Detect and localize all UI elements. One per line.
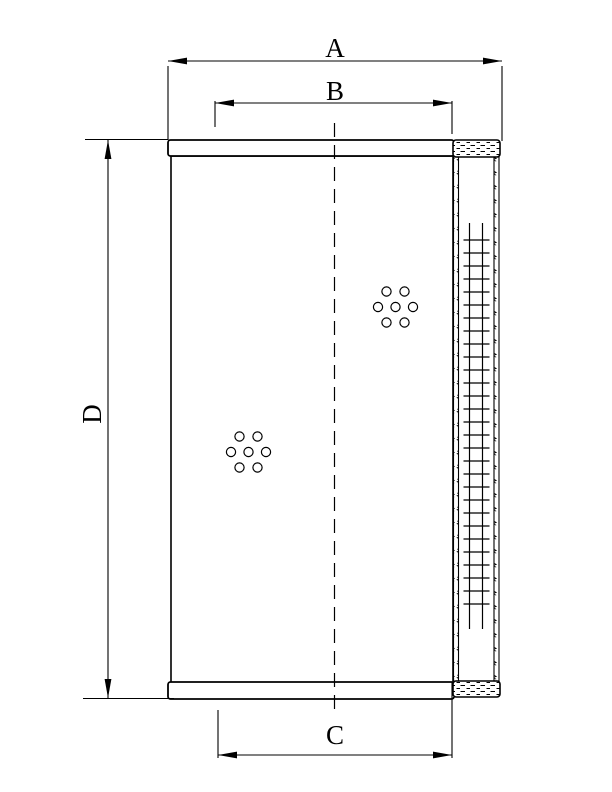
section-left-wall xyxy=(454,157,459,681)
dim-label-c: C xyxy=(326,720,344,750)
filter-body-group xyxy=(168,140,454,699)
dimension-arrowhead xyxy=(105,679,112,698)
dim-label-a: A xyxy=(325,33,345,63)
vent-hole xyxy=(253,463,262,472)
media-section-group xyxy=(453,140,500,697)
dimension-arrowhead xyxy=(168,58,187,65)
vent-hole xyxy=(235,432,244,441)
dim-label-b: B xyxy=(326,76,344,106)
dimension-arrowhead xyxy=(215,100,234,107)
cylinder-body xyxy=(171,156,453,683)
media-section-background xyxy=(453,141,499,697)
vent-hole xyxy=(382,318,391,327)
section-right-wall xyxy=(494,157,499,681)
bottom-end-cap xyxy=(168,682,454,699)
vent-hole xyxy=(226,447,235,456)
stippled-top-cap xyxy=(453,140,500,157)
vent-hole xyxy=(261,447,270,456)
vent-hole xyxy=(400,287,409,296)
vent-hole xyxy=(253,432,262,441)
vent-hole xyxy=(244,447,253,456)
vent-hole xyxy=(373,302,382,311)
vent-hole xyxy=(408,302,417,311)
vent-hole xyxy=(391,302,400,311)
filter-element-drawing: A B C D xyxy=(0,0,612,792)
dim-label-d: D xyxy=(77,404,107,424)
stippled-bottom-cap xyxy=(453,681,500,697)
top-end-cap xyxy=(168,140,454,156)
dimension-arrowhead xyxy=(433,752,452,759)
dimension-arrowhead xyxy=(433,100,452,107)
vent-hole xyxy=(400,318,409,327)
vent-hole xyxy=(382,287,391,296)
dimension-arrowhead xyxy=(483,58,502,65)
dimension-arrowhead xyxy=(105,140,112,159)
dimension-arrowhead xyxy=(218,752,237,759)
vent-hole xyxy=(235,463,244,472)
drawing-page: A B C D xyxy=(0,0,612,792)
